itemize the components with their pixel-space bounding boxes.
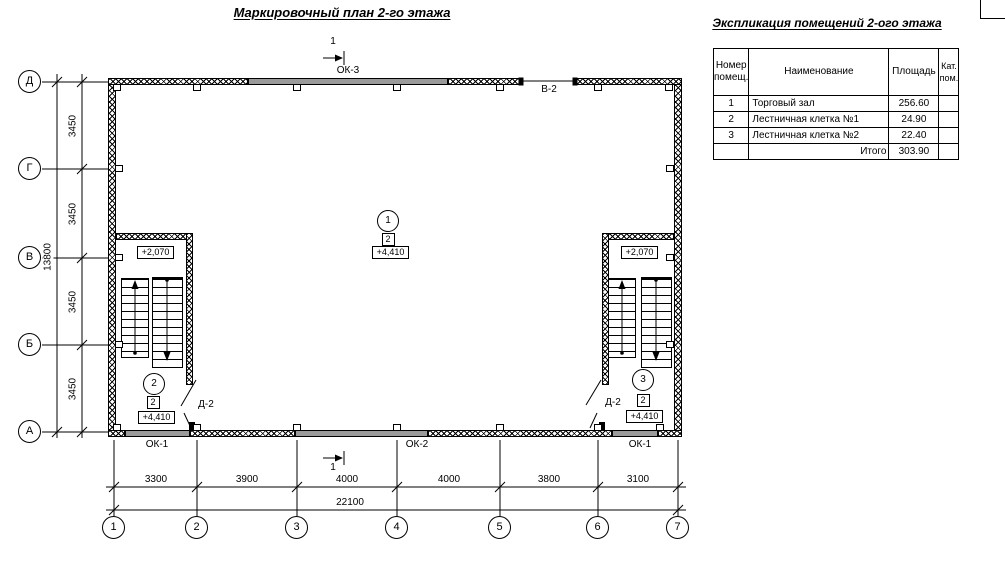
elevation-mark: +2,070 <box>137 246 174 259</box>
room-number-bubble: 1 <box>377 210 399 232</box>
axis-bubble-3: 3 <box>285 516 308 539</box>
room-category-cell <box>939 96 959 112</box>
window-label-ok3: ОК-3 <box>337 65 360 76</box>
elevation-mark: +4,410 <box>626 410 663 423</box>
dim-label: 3900 <box>236 474 258 485</box>
window-label-ok1-left: ОК-1 <box>146 439 169 450</box>
room-category-box: 2 <box>637 394 650 407</box>
dim-total-label: 22100 <box>336 497 364 508</box>
axis-bubble-2: 2 <box>185 516 208 539</box>
room-category-box: 2 <box>147 396 160 409</box>
drawing-sheet: Маркировочный план 2-го этажа Экспликаци… <box>0 0 1005 582</box>
table-header-row: Номер помещ. Наименование Площадь Кат. п… <box>714 49 959 96</box>
room-name-cell: Лестничная клетка №1 <box>749 112 889 128</box>
axis-bubble-6: 6 <box>586 516 609 539</box>
room-name-cell: Лестничная клетка №2 <box>749 128 889 144</box>
room-category-cell <box>939 128 959 144</box>
axis-bubble-a: А <box>18 420 41 443</box>
room-number-cell: 2 <box>714 112 749 128</box>
total-area-cell: 303.90 <box>889 144 939 160</box>
opening-label-v2: В-2 <box>541 84 557 95</box>
dim-label: 3450 <box>68 290 79 314</box>
room-number-bubble: 2 <box>143 373 165 395</box>
room-area-cell: 24.90 <box>889 112 939 128</box>
elevation-mark: +4,410 <box>138 411 175 424</box>
explication-table: Номер помещ. Наименование Площадь Кат. п… <box>713 48 959 160</box>
axis-bubble-5: 5 <box>488 516 511 539</box>
empty-cell <box>714 144 749 160</box>
table-row: 2 Лестничная клетка №1 24.90 <box>714 112 959 128</box>
window-label-ok1-right: ОК-1 <box>629 439 652 450</box>
empty-cell <box>939 144 959 160</box>
room-name-cell: Торговый зал <box>749 96 889 112</box>
dim-label: 4000 <box>438 474 460 485</box>
dim-label: 3100 <box>627 474 649 485</box>
dim-label: 3450 <box>68 377 79 401</box>
room-number-cell: 3 <box>714 128 749 144</box>
table-row: 1 Торговый зал 256.60 <box>714 96 959 112</box>
room-area-cell: 256.60 <box>889 96 939 112</box>
section-mark-label-bottom: 1 <box>330 462 336 473</box>
dim-label: 3450 <box>68 202 79 226</box>
door-label-d2-left: Д-2 <box>198 399 214 410</box>
axis-bubble-v: В <box>18 246 41 269</box>
dim-label: 3800 <box>538 474 560 485</box>
axis-bubble-d: Д <box>18 70 41 93</box>
total-label-cell: Итого <box>749 144 889 160</box>
room-number-bubble: 3 <box>632 369 654 391</box>
col-header-category: Кат. пом. <box>939 49 959 96</box>
col-header-area: Площадь <box>889 49 939 96</box>
table-row: 3 Лестничная клетка №2 22.40 <box>714 128 959 144</box>
dim-label: 3450 <box>68 114 79 138</box>
axis-bubble-4: 4 <box>385 516 408 539</box>
room-category-box: 2 <box>382 233 395 246</box>
col-header-number: Номер помещ. <box>714 49 749 96</box>
elevation-mark: +2,070 <box>621 246 658 259</box>
table-total-row: Итого 303.90 <box>714 144 959 160</box>
axis-bubble-7: 7 <box>666 516 689 539</box>
room-category-cell <box>939 112 959 128</box>
elevation-mark: +4,410 <box>372 246 409 259</box>
section-mark-label-top: 1 <box>330 36 336 47</box>
axis-bubble-g: Г <box>18 157 41 180</box>
door-label-d2-right: Д-2 <box>605 397 621 408</box>
dim-total-label: 13800 <box>43 242 54 272</box>
room-area-cell: 22.40 <box>889 128 939 144</box>
col-header-name: Наименование <box>749 49 889 96</box>
dim-label: 4000 <box>336 474 358 485</box>
dim-label: 3300 <box>145 474 167 485</box>
axis-bubble-1: 1 <box>102 516 125 539</box>
room-number-cell: 1 <box>714 96 749 112</box>
axis-bubble-b: Б <box>18 333 41 356</box>
window-label-ok2: ОК-2 <box>406 439 429 450</box>
